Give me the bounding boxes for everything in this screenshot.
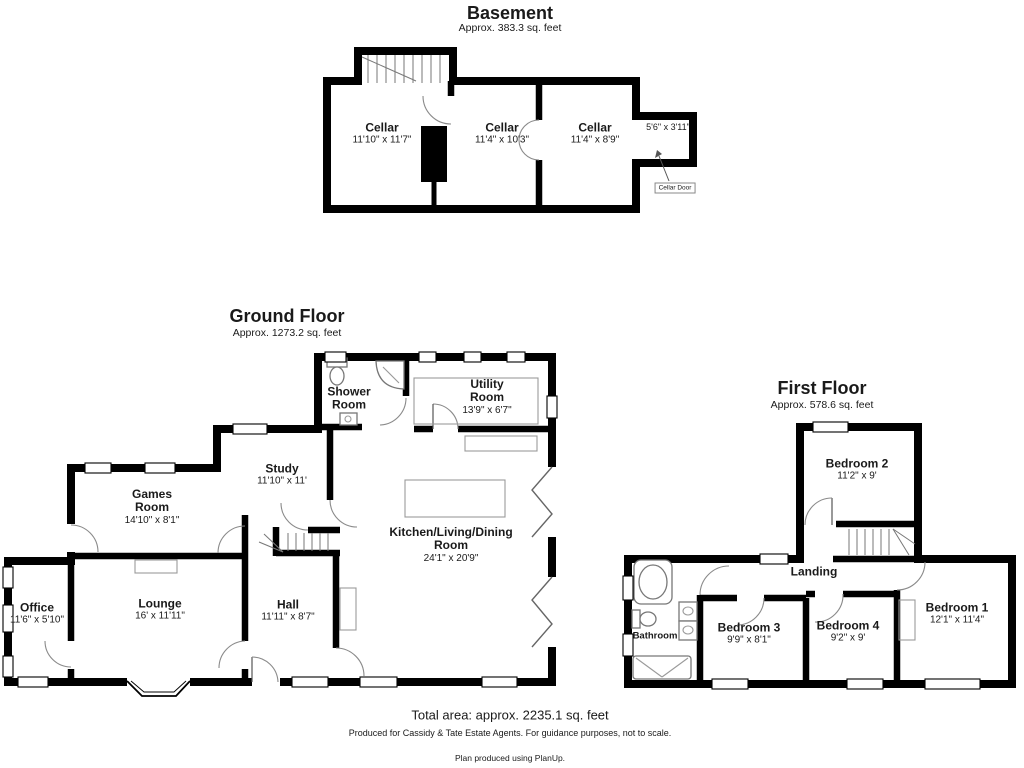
room-label-bedroom-1: Bedroom 1 12'1" x 11'4" <box>926 602 989 627</box>
ground-sink-icon <box>340 413 357 425</box>
room-label-office: Office 11'6" x 5'10" <box>10 602 64 627</box>
room-label-study: Study 11'10" x 11' <box>257 463 307 488</box>
first-title: First Floor <box>778 378 867 398</box>
bath-icon <box>634 560 672 604</box>
ground-area: Approx. 1273.2 sq. feet <box>233 326 342 340</box>
basement-chimney <box>421 126 447 182</box>
total-area-text: Total area: approx. 2235.1 sq. feet <box>411 709 608 724</box>
first-sink-icon <box>679 602 697 640</box>
first-toilet-icon <box>632 610 656 628</box>
disclaimer-text: Produced for Cassidy & Tate Estate Agent… <box>349 728 672 738</box>
cellar-door-label: Cellar Door <box>655 183 696 194</box>
room-label-games-room: Games Room 14'10" x 8'1" <box>125 488 180 526</box>
room-label-cellar-2: Cellar 11'4" x 10'3" <box>475 122 529 147</box>
cellar-annex-dims: 5'6" x 3'11" <box>646 122 690 132</box>
room-label-bedroom-2: Bedroom 2 11'2" x 9' <box>826 458 889 483</box>
room-label-kitchen-living-dining: Kitchen/Living/Dining Room 24'1" x 20'9" <box>374 526 529 564</box>
first-shower-icon <box>633 656 691 679</box>
first-floor-plan <box>623 422 1012 689</box>
room-label-cellar-1: Cellar 11'10" x 11'7" <box>353 122 412 147</box>
basement-area: Approx. 383.3 sq. feet <box>459 21 562 35</box>
basement-title: Basement <box>467 3 553 23</box>
first-outline <box>628 427 1012 684</box>
ground-title: Ground Floor <box>230 306 345 326</box>
room-label-lounge: Lounge 16' x 11'11" <box>135 598 185 623</box>
room-label-utility-room: Utility Room 13'9" x 6'7" <box>462 378 512 416</box>
room-label-bedroom-3: Bedroom 3 9'9" x 8'1" <box>718 622 781 647</box>
credit-text: Plan produced using PlanUp. <box>455 754 565 764</box>
room-label-shower-room: Shower Room <box>322 386 376 413</box>
room-label-bedroom-4: Bedroom 4 9'2" x 9' <box>817 620 880 645</box>
room-label-landing: Landing <box>791 565 838 578</box>
first-area: Approx. 578.6 sq. feet <box>771 398 874 412</box>
floorplan-drawing <box>0 0 1024 768</box>
bay-window <box>127 681 190 696</box>
room-label-hall: Hall 11'11" x 8'7" <box>261 599 314 624</box>
room-label-cellar-3: Cellar 11'4" x 8'9" <box>571 122 620 147</box>
floorplan-page: { "floors": { "basement": { "title": "Ba… <box>0 0 1024 768</box>
room-label-bathroom: Bathroom <box>633 632 678 643</box>
